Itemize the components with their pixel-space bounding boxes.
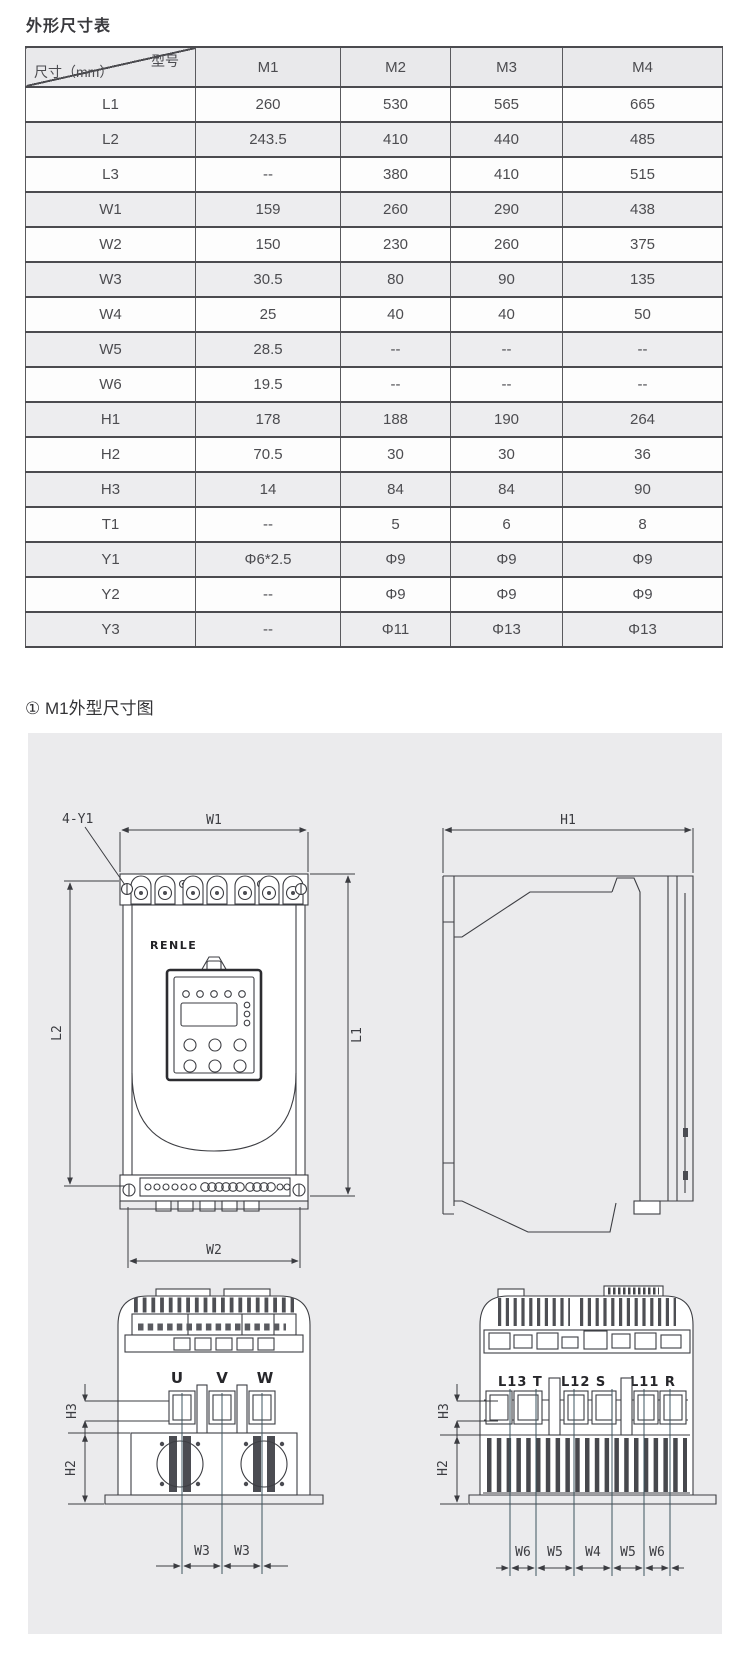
cell: 84 xyxy=(451,472,563,507)
cell: 30.5 xyxy=(196,262,341,297)
table-row: W1159260290438 xyxy=(26,192,723,227)
cell: 438 xyxy=(563,192,723,227)
row-label: W5 xyxy=(26,332,196,367)
cell: 90 xyxy=(451,262,563,297)
dim-label-w4: W4 xyxy=(585,1545,601,1560)
row-label: H2 xyxy=(26,437,196,472)
row-label: W3 xyxy=(26,262,196,297)
cell: Φ9 xyxy=(341,577,451,612)
cell: 135 xyxy=(563,262,723,297)
cell: 70.5 xyxy=(196,437,341,472)
cell: Φ11 xyxy=(341,612,451,647)
terminal-label-w: W xyxy=(257,1369,274,1387)
cell: Φ13 xyxy=(563,612,723,647)
column-header-m2: M2 xyxy=(341,47,451,87)
cell: Φ9 xyxy=(563,577,723,612)
table-row: H1178188190264 xyxy=(26,402,723,437)
cell: 6 xyxy=(451,507,563,542)
cell: 80 xyxy=(341,262,451,297)
dim-label-l1: L1 xyxy=(350,1027,365,1043)
cell: 90 xyxy=(563,472,723,507)
cell: Φ9 xyxy=(341,542,451,577)
table-row: Y1Φ6*2.5Φ9Φ9Φ9 xyxy=(26,542,723,577)
cell: 25 xyxy=(196,297,341,332)
cell: 410 xyxy=(451,157,563,192)
column-header-m1: M1 xyxy=(196,47,341,87)
cell: Φ9 xyxy=(451,542,563,577)
cell: 40 xyxy=(341,297,451,332)
table-row: W330.58090135 xyxy=(26,262,723,297)
brand-logo: RENLE xyxy=(150,939,197,952)
column-header-m4: M4 xyxy=(563,47,723,87)
cell: 230 xyxy=(341,227,451,262)
dim-label-h2-left: H2 xyxy=(64,1460,79,1476)
cell: 243.5 xyxy=(196,122,341,157)
bottom-view-left: U V W H3 xyxy=(64,1289,323,1574)
cell: 410 xyxy=(341,122,451,157)
cell: 150 xyxy=(196,227,341,262)
row-label: H3 xyxy=(26,472,196,507)
table-row: L3--380410515 xyxy=(26,157,723,192)
row-label: W4 xyxy=(26,297,196,332)
page-title: 外形尺寸表 xyxy=(26,12,750,36)
cell: 565 xyxy=(451,87,563,122)
terminal-label-u: U xyxy=(171,1369,183,1387)
terminal-label-v: V xyxy=(216,1369,228,1387)
row-label: W2 xyxy=(26,227,196,262)
manual-page: 外形尺寸表 型号 尺寸（mm） M1 M2 M3 M4 L12605305656… xyxy=(0,12,750,1657)
cell: 485 xyxy=(563,122,723,157)
table-row: W619.5------ xyxy=(26,367,723,402)
table-row: T1--568 xyxy=(26,507,723,542)
terminal-label-l11-r: L11 R xyxy=(630,1375,676,1390)
table-row: Y2--Φ9Φ9Φ9 xyxy=(26,577,723,612)
row-label: Y1 xyxy=(26,542,196,577)
table-row: H314848490 xyxy=(26,472,723,507)
m1-dimension-drawing: RENLE xyxy=(28,733,722,1634)
cell: 260 xyxy=(341,192,451,227)
dim-label-w6-b: W6 xyxy=(649,1545,665,1560)
row-label: W6 xyxy=(26,367,196,402)
cell: -- xyxy=(451,332,563,367)
cell: 190 xyxy=(451,402,563,437)
dim-label-4-y1: 4-Y1 xyxy=(62,812,93,827)
terminal-label-l12-s: L12 S xyxy=(561,1375,606,1390)
cell: Φ13 xyxy=(451,612,563,647)
cell: 30 xyxy=(341,437,451,472)
row-label: Y3 xyxy=(26,612,196,647)
dim-label-w3-b: W3 xyxy=(234,1544,250,1559)
cell: Φ9 xyxy=(563,542,723,577)
bottom-view-right: L13 T L12 S L11 R H3 xyxy=(436,1286,716,1576)
cell: 19.5 xyxy=(196,367,341,402)
m1-outline-diagram: RENLE xyxy=(28,733,722,1634)
cell: 50 xyxy=(563,297,723,332)
cell: 178 xyxy=(196,402,341,437)
corner-label-model: 型号 xyxy=(151,51,179,71)
cell: 380 xyxy=(341,157,451,192)
table-row: W2150230260375 xyxy=(26,227,723,262)
cell: 188 xyxy=(341,402,451,437)
cell: 530 xyxy=(341,87,451,122)
dim-label-h1: H1 xyxy=(560,813,576,828)
cell: -- xyxy=(196,507,341,542)
cell: 290 xyxy=(451,192,563,227)
cell: 264 xyxy=(563,402,723,437)
dim-label-l2: L2 xyxy=(50,1025,65,1041)
cell: 14 xyxy=(196,472,341,507)
dim-label-w3-a: W3 xyxy=(194,1544,210,1559)
terminal-label-l13-t: L13 T xyxy=(498,1375,543,1390)
dim-label-w2: W2 xyxy=(206,1243,222,1258)
cell: 440 xyxy=(451,122,563,157)
cell: -- xyxy=(196,612,341,647)
cell: 515 xyxy=(563,157,723,192)
dim-label-w5-b: W5 xyxy=(620,1545,636,1560)
table-row: H270.5303036 xyxy=(26,437,723,472)
cell: 375 xyxy=(563,227,723,262)
cell: 159 xyxy=(196,192,341,227)
row-label: T1 xyxy=(26,507,196,542)
row-label: H1 xyxy=(26,402,196,437)
corner-cell: 型号 尺寸（mm） xyxy=(26,47,196,87)
dim-label-h3-right: H3 xyxy=(437,1403,452,1419)
table-row: Y3--Φ11Φ13Φ13 xyxy=(26,612,723,647)
cell: -- xyxy=(341,332,451,367)
cell: 5 xyxy=(341,507,451,542)
cell: Φ9 xyxy=(451,577,563,612)
row-label: L3 xyxy=(26,157,196,192)
dim-label-h2-right: H2 xyxy=(436,1460,451,1476)
cell: 260 xyxy=(196,87,341,122)
table-row: W528.5------ xyxy=(26,332,723,367)
dim-label-w1: W1 xyxy=(206,813,222,828)
row-label: L1 xyxy=(26,87,196,122)
table-row: L2243.5410440485 xyxy=(26,122,723,157)
cell: -- xyxy=(196,577,341,612)
table-header-row: 型号 尺寸（mm） M1 M2 M3 M4 xyxy=(26,47,723,87)
cell: 84 xyxy=(341,472,451,507)
cell: -- xyxy=(196,157,341,192)
row-label: Y2 xyxy=(26,577,196,612)
section-title: ① M1外型尺寸图 xyxy=(25,694,750,719)
side-view: H1 xyxy=(443,813,693,1232)
cell: Φ6*2.5 xyxy=(196,542,341,577)
dim-label-w6-a: W6 xyxy=(515,1545,531,1560)
front-view: RENLE xyxy=(50,812,365,1268)
dimension-table: 型号 尺寸（mm） M1 M2 M3 M4 L1260530565665 L22… xyxy=(25,46,723,648)
dim-label-h3-left: H3 xyxy=(65,1403,80,1419)
cell: 30 xyxy=(451,437,563,472)
cell: 40 xyxy=(451,297,563,332)
cell: -- xyxy=(341,367,451,402)
cell: 28.5 xyxy=(196,332,341,367)
row-label: L2 xyxy=(26,122,196,157)
table-row: W425404050 xyxy=(26,297,723,332)
column-header-m3: M3 xyxy=(451,47,563,87)
cell: -- xyxy=(563,367,723,402)
corner-label-size: 尺寸（mm） xyxy=(34,62,113,82)
cell: 665 xyxy=(563,87,723,122)
dim-label-w5-a: W5 xyxy=(547,1545,563,1560)
table-row: L1260530565665 xyxy=(26,87,723,122)
cell: -- xyxy=(563,332,723,367)
cell: 36 xyxy=(563,437,723,472)
cell: 8 xyxy=(563,507,723,542)
cell: -- xyxy=(451,367,563,402)
row-label: W1 xyxy=(26,192,196,227)
cell: 260 xyxy=(451,227,563,262)
